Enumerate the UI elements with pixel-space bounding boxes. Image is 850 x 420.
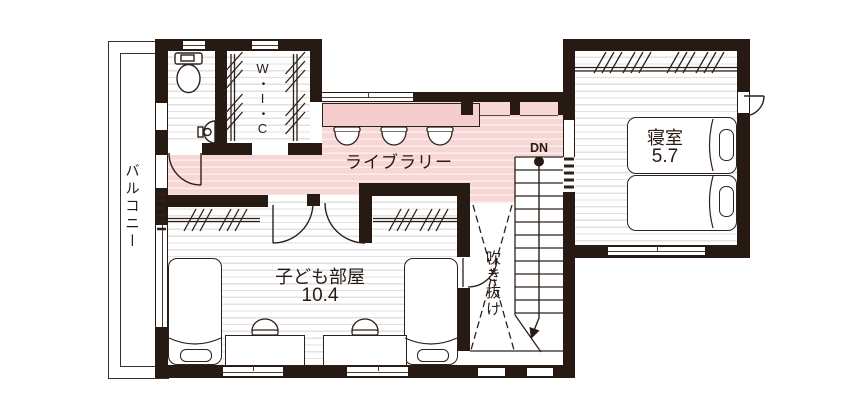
wall-niche — [520, 102, 558, 116]
wall-segment — [359, 183, 470, 196]
window — [155, 103, 168, 130]
wall-segment — [155, 195, 268, 207]
wall-segment — [202, 143, 252, 155]
wall-segment — [563, 39, 750, 51]
window — [347, 366, 408, 377]
window — [322, 92, 413, 102]
room-label-kids-area: 10.4 — [250, 285, 390, 307]
wall-segment — [155, 39, 168, 378]
wall-post — [461, 102, 473, 115]
pillow — [180, 349, 212, 362]
window — [563, 120, 575, 157]
wall-segment — [215, 51, 227, 143]
wall-segment — [563, 192, 575, 378]
balcony-door-opening — [155, 155, 168, 188]
wall-segment — [737, 39, 750, 92]
window — [183, 40, 205, 50]
stairs-dn-label: DN — [519, 141, 559, 155]
pillow — [719, 129, 734, 161]
room-label-bedroom-area: 5.7 — [625, 146, 705, 168]
pillow — [719, 186, 734, 217]
window — [478, 367, 505, 377]
bedroom-door-opening — [737, 92, 750, 113]
wall-segment — [155, 39, 322, 51]
toilet-floor — [168, 51, 215, 143]
wall-segment — [563, 39, 575, 120]
window — [527, 367, 553, 377]
window — [608, 246, 705, 256]
wall-segment — [310, 39, 322, 102]
wall-post — [510, 102, 520, 115]
window — [252, 40, 278, 50]
window — [223, 366, 283, 377]
pillow — [417, 349, 449, 362]
desk — [323, 335, 407, 366]
room-label-void: 吹き抜け — [482, 241, 503, 326]
hatched-opening — [564, 159, 574, 187]
room-label-library: ライブラリー — [329, 148, 469, 173]
floor-plan: ライブラリー 子ども部屋 10.4 寝室 5.7 DN バルコニー W・I・C … — [0, 0, 850, 420]
wall-segment — [413, 92, 575, 102]
desk — [225, 335, 305, 366]
window — [155, 225, 168, 327]
wall-segment — [288, 143, 322, 155]
room-label-balcony: バルコニー — [121, 157, 142, 257]
door-mullion — [307, 194, 320, 206]
room-label-wic: W・I・C — [253, 58, 272, 140]
wall-segment — [737, 113, 750, 258]
door-opening — [457, 257, 470, 288]
library-counter-desk — [322, 103, 480, 127]
